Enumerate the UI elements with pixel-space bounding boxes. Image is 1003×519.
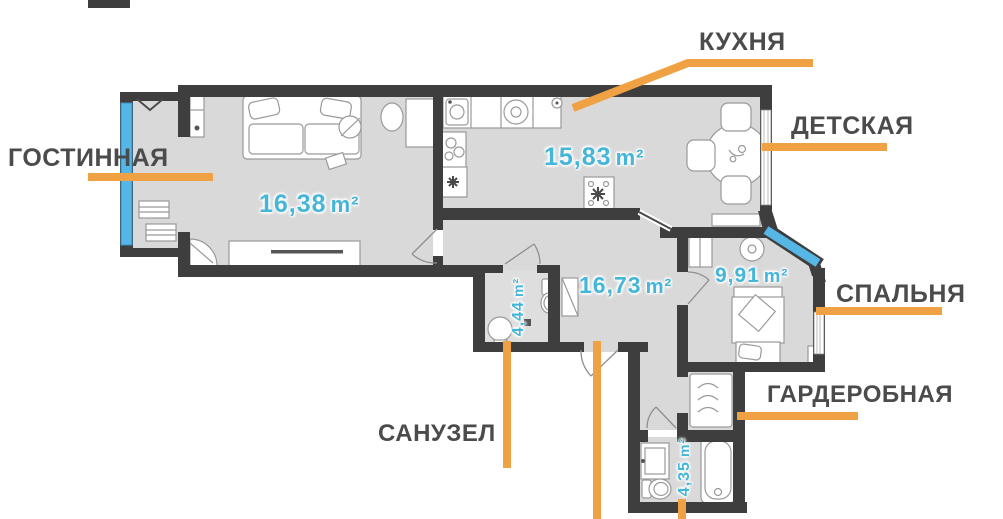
bathtub: [701, 436, 735, 504]
room-label-bathroom: САНУЗЕЛ: [378, 420, 496, 448]
room-label-wardrobe: ГАРДЕРОБНАЯ: [767, 381, 953, 409]
cabinet: [190, 96, 204, 137]
floorplan-svg: [0, 0, 1003, 519]
room-label-children: ДЕТСКАЯ: [791, 112, 914, 141]
children-window: [761, 110, 771, 205]
area-label-hallway: 16,73m²: [579, 272, 672, 299]
bedroom-window: [814, 312, 824, 354]
wardrobe-cabinet: [690, 374, 732, 427]
toilet-main: [642, 479, 671, 499]
area-label-living: 16,38m²: [259, 190, 359, 219]
room-label-living: ГОСТИННАЯ: [8, 144, 169, 173]
room-label-kitchen: КУХНЯ: [699, 28, 786, 57]
stool: [740, 237, 764, 261]
stove: [584, 177, 614, 211]
hall-cabinet: [562, 278, 578, 316]
area-label-bedroom: 9,91m²: [715, 264, 788, 288]
area-label-kitchen: 15,83m²: [544, 143, 644, 172]
floor-plan: ГОСТИННАЯ КУХНЯ ДЕТСКАЯ СПАЛЬНЯ ГАРДЕРОБ…: [0, 0, 1003, 519]
area-label-bathroom-small: 4,44m²: [510, 267, 528, 347]
area-label-bathroom-main: 4,35m²: [676, 427, 694, 507]
room-label-bedroom: СПАЛЬНЯ: [836, 280, 965, 309]
floor-lamp: [339, 116, 361, 138]
bed: [732, 287, 784, 366]
ceiling-light: [552, 98, 562, 108]
vanity-sink: [641, 443, 669, 479]
bench: [712, 214, 760, 226]
tv-stand: [229, 241, 360, 266]
dresser: [689, 234, 712, 267]
cropped-artifact: [88, 0, 130, 8]
